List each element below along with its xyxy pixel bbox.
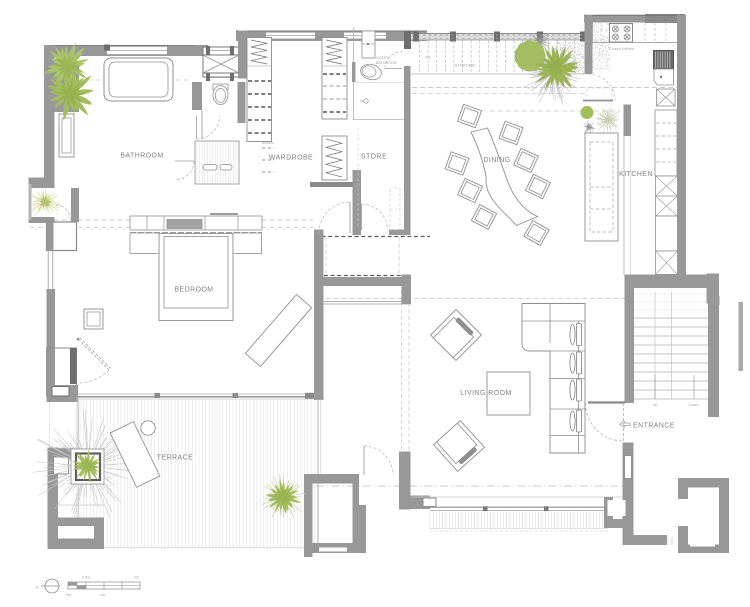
svg-text:STORE: STORE [361,154,387,161]
svg-text:0m: 0m [66,593,71,597]
svg-text:BATHROOM: BATHROOM [376,61,397,65]
svg-text:Up: Up [653,403,658,407]
svg-text:2m: 2m [134,576,139,580]
svg-text:0.5m: 0.5m [82,576,90,580]
svg-text:GUEST: GUEST [376,56,389,60]
svg-text:Down: Down [689,403,698,407]
svg-text:VIF: VIF [425,56,431,60]
svg-text:LIVING ROOM: LIVING ROOM [460,390,511,397]
svg-text:DINING: DINING [483,157,510,164]
svg-text:STAIRCASE: STAIRCASE [455,64,476,68]
svg-text:N: N [36,586,39,590]
svg-text:KITCHEN: KITCHEN [619,171,653,178]
svg-text:1m: 1m [100,593,105,597]
svg-text:BEDROOM: BEDROOM [174,287,213,294]
svg-text:ENTRANCE: ENTRANCE [633,423,675,430]
svg-text:TERRACE: TERRACE [157,455,193,462]
svg-text:BATHROOM: BATHROOM [120,153,163,160]
svg-text:WARDROBE: WARDROBE [269,155,313,162]
svg-text:Closed kitchen: Closed kitchen [609,47,634,51]
